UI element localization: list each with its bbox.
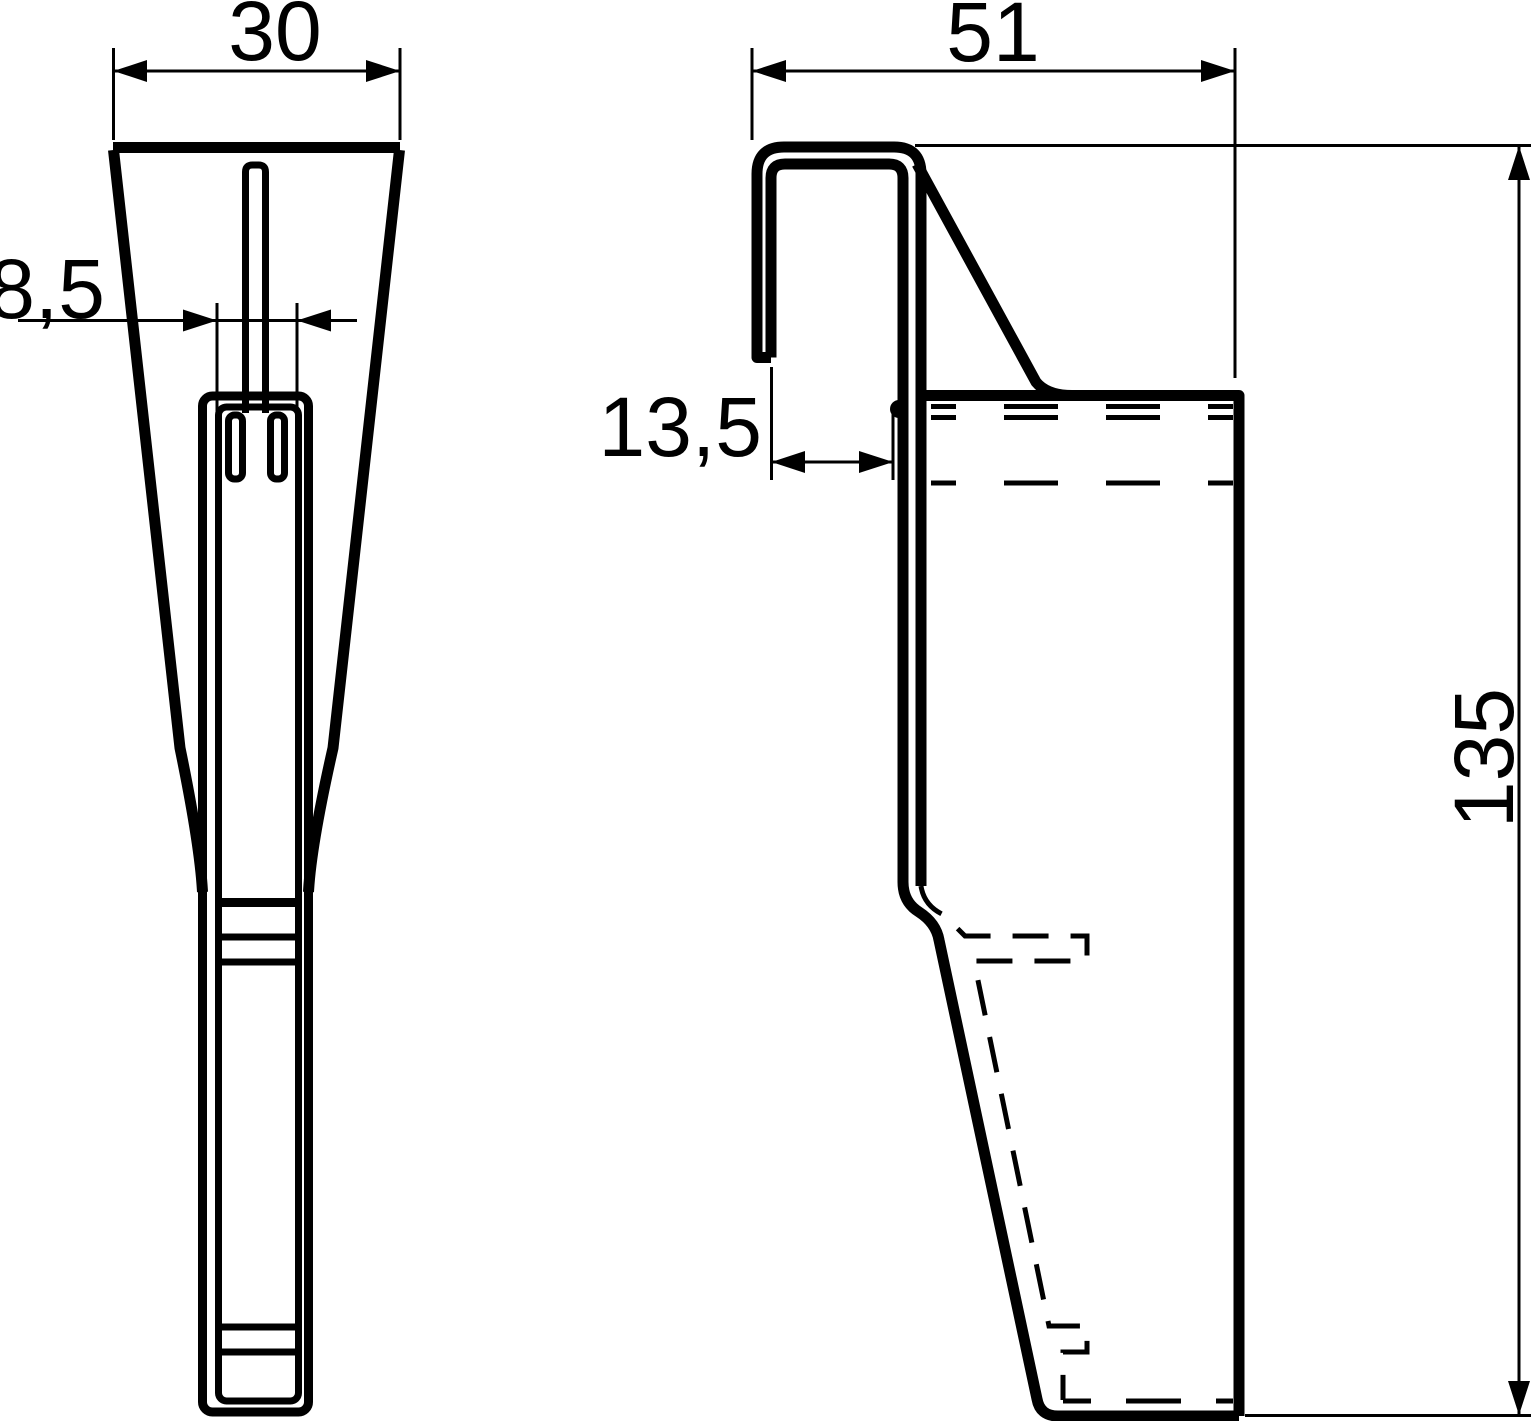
dimension-hook-opening: 13,5	[599, 367, 894, 480]
technical-drawing-canvas: 30 8,5 51 13,5	[0, 0, 1539, 1421]
dim135-arrow-bottom	[1508, 1381, 1530, 1415]
dim51-arrow-right	[1201, 60, 1235, 82]
side-flange-right-edge	[921, 396, 1239, 1417]
dimension-depth: 51	[752, 0, 1235, 378]
front-right-slant	[309, 150, 400, 892]
dimension-top-width: 30	[114, 0, 401, 140]
dim135o-arrow-right	[859, 451, 893, 473]
front-left-slant	[114, 150, 203, 892]
dim51-arrow-left	[752, 60, 786, 82]
dim-label-slot-width: 8,5	[0, 242, 105, 336]
side-gusset	[917, 164, 1072, 396]
dim85-arrow-left	[183, 310, 217, 332]
dim30-arrow-left	[114, 60, 148, 82]
side-hook-outer	[757, 147, 921, 886]
dim30-arrow-right	[366, 60, 400, 82]
dim135-arrow-top	[1508, 146, 1530, 180]
dim85-arrow-right	[297, 310, 331, 332]
dimension-slot-width: 8,5	[0, 242, 357, 476]
front-view	[113, 148, 400, 1413]
dim-label-hook-opening: 13,5	[599, 380, 763, 474]
dim135o-arrow-left	[772, 451, 806, 473]
front-slot-right	[271, 415, 285, 479]
dim-label-top-width: 30	[228, 0, 321, 78]
side-body-front	[771, 164, 1239, 1416]
dim-label-depth: 51	[946, 0, 1039, 79]
front-slot-left	[229, 415, 243, 479]
front-center-rod	[246, 165, 266, 413]
drawing-svg: 30 8,5 51 13,5	[0, 0, 1539, 1421]
dim-label-height: 135	[1437, 688, 1531, 828]
side-view	[757, 147, 1239, 1416]
